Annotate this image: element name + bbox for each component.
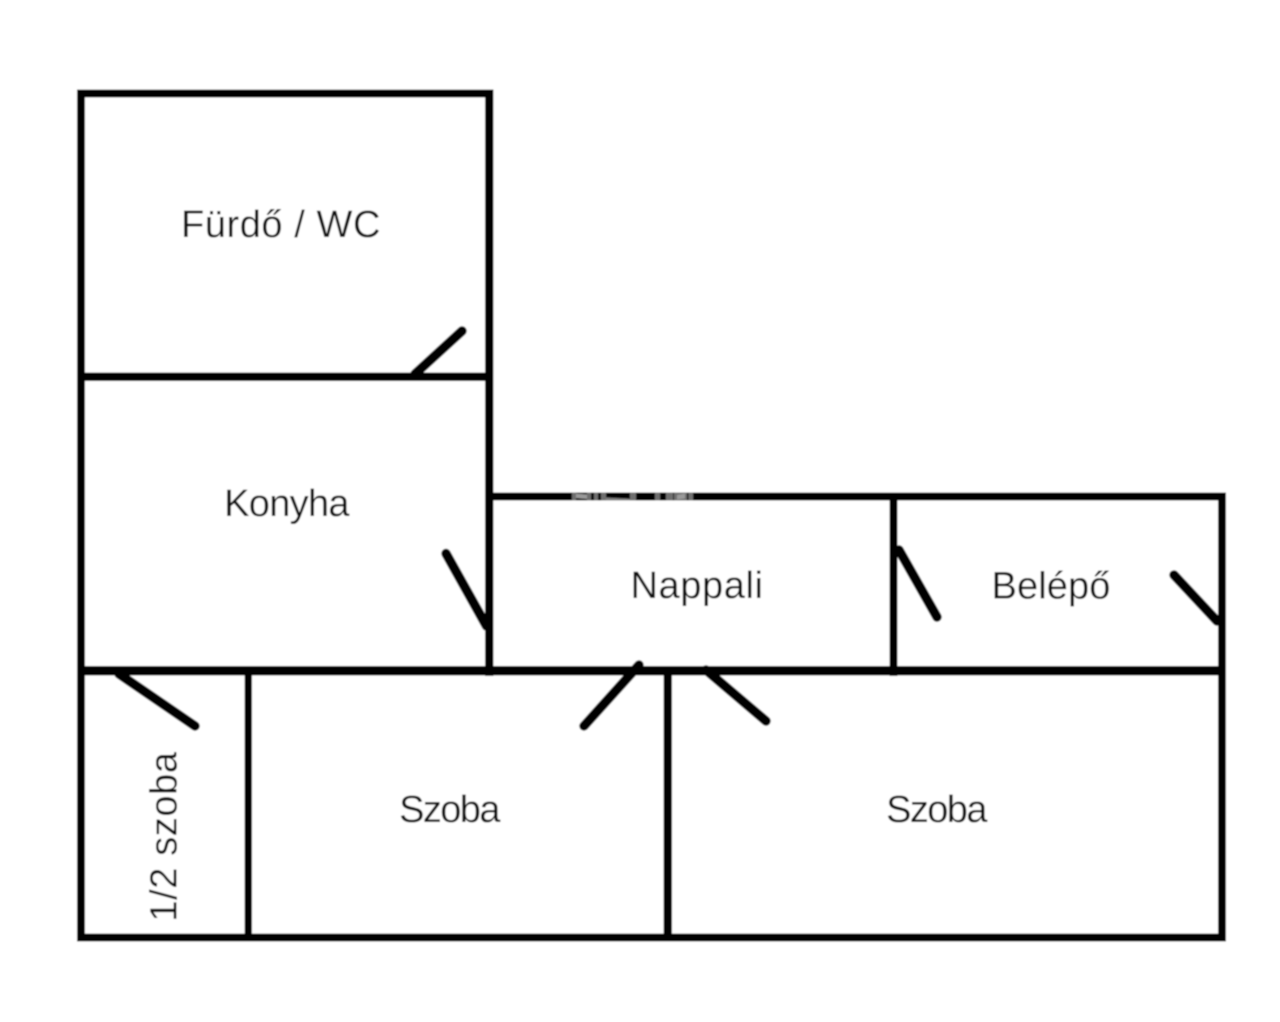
- svg-text:Szoba: Szoba: [886, 789, 988, 831]
- svg-text:Szoba: Szoba: [399, 789, 501, 831]
- svg-text:Konyha: Konyha: [224, 483, 350, 525]
- svg-text:1/2 szoba: 1/2 szoba: [144, 751, 186, 921]
- svg-text:Nappali: Nappali: [630, 565, 763, 607]
- svg-text:Fürdő / WC: Fürdő / WC: [181, 204, 381, 246]
- svg-text:Belépő: Belépő: [992, 566, 1111, 608]
